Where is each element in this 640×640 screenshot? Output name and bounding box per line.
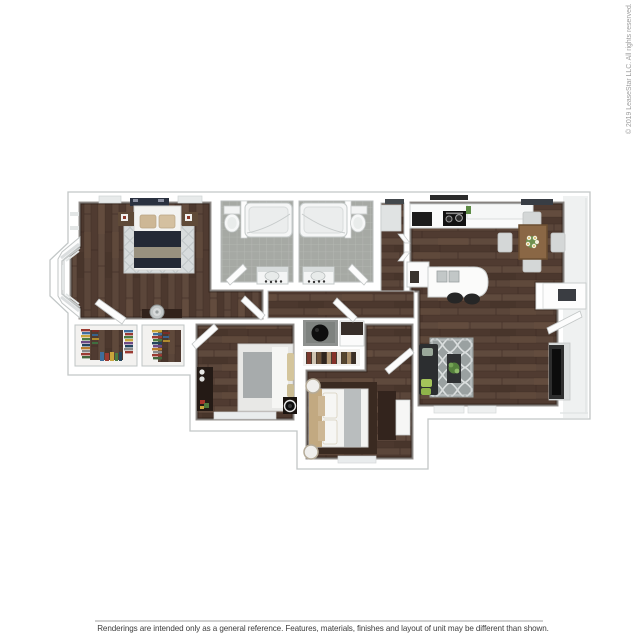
- svg-text:© 2019 LeaseStar LLC. All righ: © 2019 LeaseStar LLC. All rights reserve…: [625, 3, 633, 134]
- svg-text:Renderings are intended only a: Renderings are intended only as a genera…: [97, 624, 549, 633]
